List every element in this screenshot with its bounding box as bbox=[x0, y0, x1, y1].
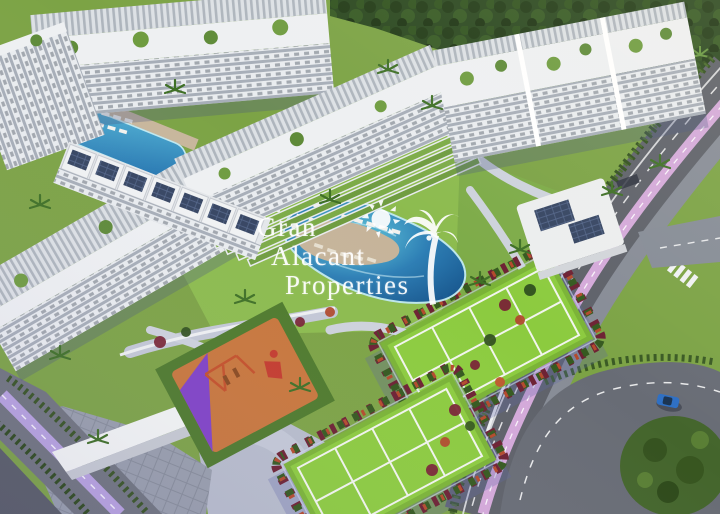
scene-graphics bbox=[0, 0, 720, 514]
light-overlay bbox=[0, 0, 720, 514]
aerial-render: Gran Alacant Properties bbox=[0, 0, 720, 514]
